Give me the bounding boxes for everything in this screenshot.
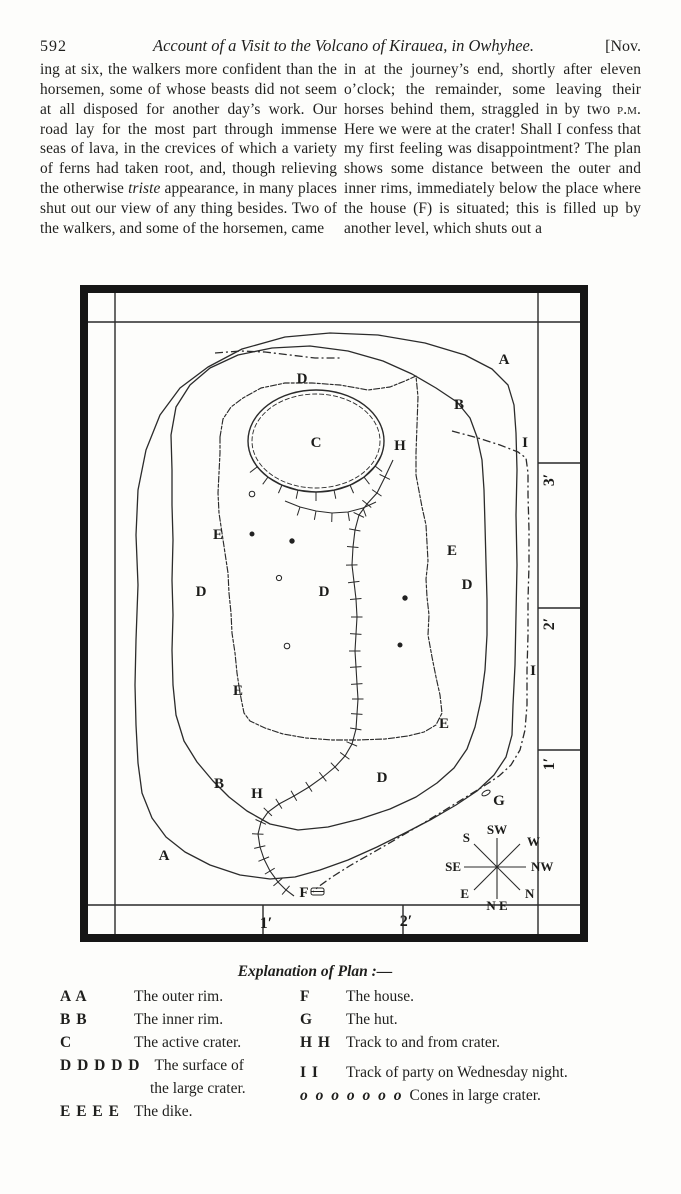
- cone-icon: [398, 643, 402, 647]
- cone-icon: [276, 575, 281, 580]
- legend-key: D D D D D: [60, 1054, 140, 1077]
- legend-key: B B: [60, 1008, 134, 1031]
- left-text-italic: triste: [128, 180, 160, 197]
- legend-desc: The hut.: [346, 1008, 398, 1031]
- legend-desc: The active crater.: [134, 1031, 241, 1054]
- map-label-house: F: [299, 885, 308, 901]
- map-label-track-top: H: [394, 438, 406, 454]
- map-label-night-track-right: I: [530, 663, 536, 679]
- legend-right-column: F The house. G The hut. H H Track to and…: [300, 985, 626, 1123]
- legend-key: A A: [60, 985, 134, 1008]
- cone-icon: [403, 596, 407, 600]
- scale-bottom-1: 1′: [260, 915, 273, 932]
- legend-key: E E E E: [60, 1100, 134, 1123]
- body-text: ing at six, the walkers more confident t…: [40, 60, 641, 239]
- map-label-outer-rim-top: A: [499, 352, 510, 368]
- legend-key: H H: [300, 1031, 340, 1054]
- house-symbol: [311, 888, 324, 895]
- legend-row-inner-rim: B B The inner rim.: [60, 1008, 300, 1031]
- map-margin-lines: [88, 293, 580, 934]
- crater-plan-svg: 3′ 2′ 1′ 1′ 2′: [80, 285, 588, 942]
- running-title: Account of a Visit to the Volcano of Kir…: [98, 36, 589, 56]
- plan-explanation: Explanation of Plan :— A A The outer rim…: [60, 963, 626, 1123]
- compass-label-s: S: [463, 830, 470, 845]
- map-label-dike-left-top: E: [213, 527, 223, 543]
- compass-label-n: N: [525, 886, 535, 901]
- cone-icon: [249, 491, 255, 497]
- legend-key: I I: [300, 1061, 340, 1084]
- right-text-2: Here we were at the crater! Shall I conf…: [344, 121, 641, 237]
- legend-row-outer-rim: A A The outer rim.: [60, 985, 300, 1008]
- legend-desc: Cones in large crater.: [410, 1084, 541, 1107]
- legend-desc: Track to and from crater.: [346, 1031, 500, 1054]
- track-hatched-path: [258, 460, 393, 896]
- crater-plan-map: 3′ 2′ 1′ 1′ 2′: [80, 285, 588, 942]
- compass-label-e: E: [460, 886, 469, 901]
- compass-label-nw: NW: [531, 859, 553, 874]
- legend-row-night-track: I I Track of party on Wednesday night.: [300, 1061, 626, 1084]
- cone-icon: [250, 532, 254, 536]
- map-label-surface-center: D: [319, 584, 330, 600]
- scanned-document-page: { "page": { "number": "592", "running_ti…: [0, 0, 681, 1194]
- cone-symbols: [249, 491, 407, 649]
- issue-month: [Nov.: [589, 38, 641, 56]
- legend-row-surface: D D D D D The surface of: [60, 1054, 300, 1077]
- map-label-surface-right: D: [462, 577, 473, 593]
- page-number: 592: [40, 38, 98, 56]
- map-label-surface-bottom: D: [377, 770, 388, 786]
- legend-left-column: A A The outer rim. B B The inner rim. C …: [60, 985, 300, 1123]
- legend-row-hut: G The hut.: [300, 1008, 626, 1031]
- legend-key-cones: o o o o o o o: [300, 1084, 404, 1107]
- map-label-night-track-top: I: [522, 435, 528, 451]
- map-label-track-bottom: H: [251, 786, 263, 802]
- scale-right-1: 1′: [541, 758, 558, 771]
- map-label-surface-top: D: [297, 371, 308, 387]
- compass-label-ne: N E: [486, 898, 507, 913]
- legend-desc: The house.: [346, 985, 414, 1008]
- left-text-1: ing at six, the walkers more confident t…: [40, 61, 337, 197]
- map-label-outer-rim-bottom: A: [159, 848, 170, 864]
- hut-symbol: [481, 789, 491, 797]
- scale-bottom-2: 2′: [400, 913, 413, 930]
- legend-desc: The surface of: [154, 1054, 244, 1077]
- compass-label-sw: SW: [487, 822, 507, 837]
- legend-desc: The dike.: [134, 1100, 193, 1123]
- cone-icon: [284, 643, 290, 649]
- compass-rose: SW W NW N N E E SE S: [445, 822, 553, 913]
- page-header: 592 Account of a Visit to the Volcano of…: [40, 36, 641, 56]
- legend-row-dike: E E E E The dike.: [60, 1100, 300, 1123]
- legend-key: F: [300, 985, 340, 1008]
- scale-right-2: 2′: [541, 618, 558, 631]
- legend-row-active-crater: C The active crater.: [60, 1031, 300, 1054]
- legend-row-surface-line2: the large crater.: [150, 1077, 300, 1100]
- legend-desc: Track of party on Wednesday night.: [346, 1061, 568, 1084]
- compass-label-w: W: [527, 834, 540, 849]
- legend-desc: The outer rim.: [134, 985, 223, 1008]
- outer-rim-contour: [135, 333, 517, 879]
- legend-key: G: [300, 1008, 340, 1031]
- map-label-dike-left-bottom: E: [233, 683, 243, 699]
- compass-label-se: SE: [445, 859, 461, 874]
- legend-row-house: F The house.: [300, 985, 626, 1008]
- active-crater-ring: [248, 390, 384, 513]
- legend-title: Explanation of Plan :—: [32, 963, 598, 981]
- body-right-column: in at the journey’s end, shortly after e…: [344, 60, 641, 239]
- legend-row-track: H H Track to and from crater.: [300, 1031, 626, 1054]
- map-label-surface-left: D: [196, 584, 207, 600]
- legend-key: C: [60, 1031, 134, 1054]
- right-text-smallcaps: p.m.: [617, 101, 641, 118]
- scale-right-3: 3′: [541, 474, 558, 487]
- map-label-dike-right-bottom: E: [439, 716, 449, 732]
- map-label-hut: G: [493, 793, 505, 809]
- map-label-inner-rim-bottom: B: [214, 776, 224, 792]
- map-label-active-crater: C: [311, 435, 322, 451]
- body-left-column: ing at six, the walkers more confident t…: [40, 60, 337, 239]
- right-text-1: in at the journey’s end, shortly after e…: [344, 61, 641, 118]
- dike-contour: [218, 376, 442, 740]
- legend-desc: The inner rim.: [134, 1008, 223, 1031]
- map-label-dike-right-top: E: [447, 543, 457, 559]
- map-label-inner-rim-top: B: [454, 397, 464, 413]
- legend-row-cones: o o o o o o o Cones in large crater.: [300, 1084, 626, 1107]
- cone-icon: [290, 539, 294, 543]
